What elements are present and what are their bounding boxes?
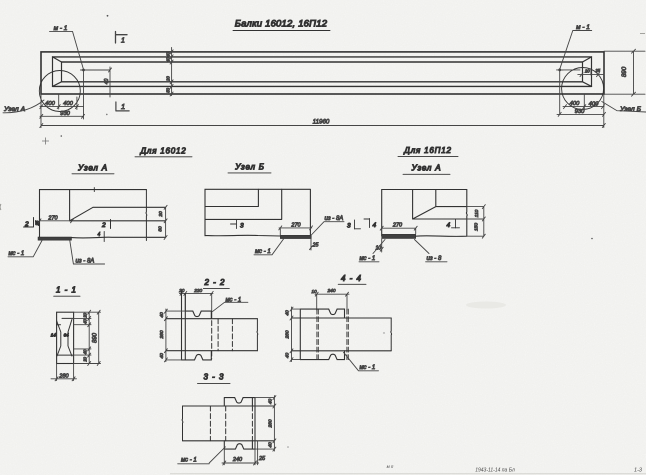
svg-text:4 - 4: 4 - 4 <box>341 274 362 283</box>
svg-text:20: 20 <box>82 312 87 318</box>
svg-text:40: 40 <box>82 319 87 324</box>
svg-text:220: 220 <box>193 288 202 294</box>
svg-text:20: 20 <box>158 211 164 218</box>
svg-text:64: 64 <box>64 333 70 338</box>
svg-text:110: 110 <box>474 209 480 217</box>
svg-text:400: 400 <box>570 101 580 107</box>
svg-text:400: 400 <box>45 101 55 107</box>
svg-text:Узел А: Узел А <box>3 106 26 113</box>
svg-text:25: 25 <box>258 456 266 462</box>
svg-text:240: 240 <box>326 288 335 294</box>
svg-text:40: 40 <box>166 57 171 62</box>
svg-text:2 - 2: 2 - 2 <box>203 278 225 287</box>
svg-text:280: 280 <box>58 373 69 379</box>
svg-text:1: 1 <box>121 102 125 111</box>
svg-text:25: 25 <box>35 220 40 226</box>
svg-text:Для 16012: Для 16012 <box>139 147 186 156</box>
svg-text:40: 40 <box>166 52 171 57</box>
svg-text:4: 4 <box>98 232 101 238</box>
svg-text:40: 40 <box>159 312 165 318</box>
svg-text:мс - 1: мс - 1 <box>9 251 25 257</box>
svg-text:1-3: 1-3 <box>634 468 643 474</box>
svg-text:280: 280 <box>268 419 274 428</box>
svg-text:Узел А: Узел А <box>411 164 442 173</box>
svg-text:1943-11-14 па Бл: 1943-11-14 па Бл <box>475 468 515 474</box>
svg-text:2: 2 <box>101 222 106 229</box>
svg-text:400: 400 <box>63 101 73 107</box>
svg-text:270: 270 <box>47 216 58 222</box>
svg-text:40: 40 <box>82 349 87 354</box>
svg-text:400: 400 <box>589 102 599 108</box>
svg-text:м п: м п <box>387 464 394 469</box>
svg-text:4: 4 <box>447 222 451 229</box>
svg-text:1: 1 <box>121 38 125 45</box>
svg-text:930: 930 <box>60 111 70 117</box>
svg-text:1 - 1: 1 - 1 <box>56 286 77 295</box>
svg-text:40: 40 <box>268 442 274 448</box>
svg-text:150: 150 <box>473 223 479 231</box>
svg-text:80: 80 <box>158 226 164 232</box>
svg-text:270: 270 <box>290 223 301 229</box>
svg-text:50: 50 <box>166 87 171 92</box>
svg-text:890: 890 <box>92 332 98 343</box>
svg-text:м - 1: м - 1 <box>576 24 590 31</box>
svg-text:25: 25 <box>594 68 600 73</box>
svg-text:20: 20 <box>82 356 87 362</box>
svg-text:11960: 11960 <box>313 119 330 126</box>
svg-text:из - 8А: из - 8А <box>76 258 95 264</box>
svg-text:930: 930 <box>575 109 585 115</box>
svg-text:мс - 1: мс - 1 <box>360 365 376 371</box>
svg-text:Для 16П12: Для 16П12 <box>403 146 451 155</box>
svg-text:40: 40 <box>268 399 274 405</box>
svg-text:из - 8А: из - 8А <box>325 216 344 222</box>
svg-text:мс - 1: мс - 1 <box>181 457 197 463</box>
svg-text:10: 10 <box>311 289 317 295</box>
svg-text:мс - 1: мс - 1 <box>360 256 376 262</box>
svg-text:20: 20 <box>584 69 590 74</box>
svg-text:14: 14 <box>51 333 57 338</box>
svg-text:40: 40 <box>159 353 165 359</box>
svg-text:Узел Б: Узел Б <box>234 163 265 172</box>
svg-text:4: 4 <box>373 222 377 229</box>
svg-text:890: 890 <box>621 66 628 77</box>
svg-text:40: 40 <box>285 353 291 359</box>
svg-text:мс - 1: мс - 1 <box>255 249 271 255</box>
svg-text:280: 280 <box>159 330 165 339</box>
svg-text:270: 270 <box>392 223 403 229</box>
svg-text:из - 8: из - 8 <box>427 256 442 262</box>
svg-text:40: 40 <box>285 310 291 316</box>
svg-text:40: 40 <box>104 79 110 85</box>
svg-text:Балки 16012, 16П12: Балки 16012, 16П12 <box>235 19 328 30</box>
svg-text:3: 3 <box>240 223 244 230</box>
svg-text:25: 25 <box>312 242 319 248</box>
svg-text:240: 240 <box>232 457 243 463</box>
svg-text:280: 280 <box>285 330 291 339</box>
svg-text:3 - 3: 3 - 3 <box>203 373 224 382</box>
svg-text:Узел А: Узел А <box>77 164 108 173</box>
svg-text:3: 3 <box>347 222 351 229</box>
svg-text:10: 10 <box>376 246 382 252</box>
svg-text:20: 20 <box>166 76 171 82</box>
